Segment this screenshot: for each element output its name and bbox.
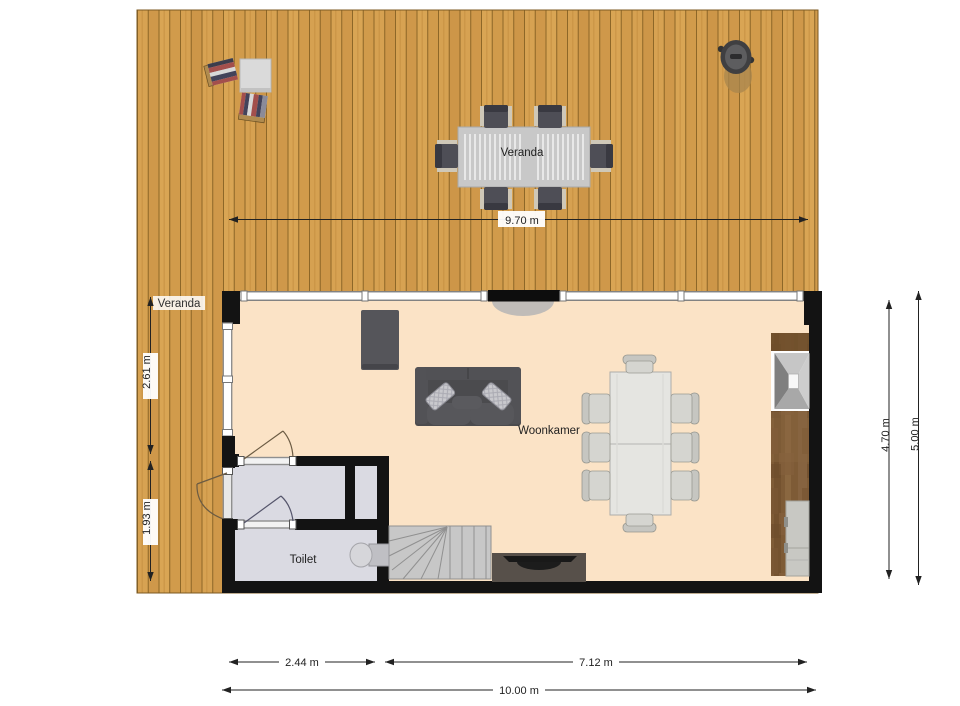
svg-text:4.70 m: 4.70 m (880, 418, 892, 452)
svg-text:1.93 m: 1.93 m (141, 501, 153, 535)
svg-text:9.70 m: 9.70 m (505, 215, 539, 227)
svg-text:Woonkamer: Woonkamer (518, 425, 580, 437)
svg-text:7.12 m: 7.12 m (579, 657, 613, 669)
svg-text:5.00 m: 5.00 m (910, 417, 922, 451)
svg-text:2.44 m: 2.44 m (285, 657, 319, 669)
svg-text:Veranda: Veranda (501, 147, 544, 159)
svg-text:Veranda: Veranda (158, 298, 201, 310)
svg-text:10.00 m: 10.00 m (499, 685, 539, 697)
svg-text:Toilet: Toilet (290, 554, 318, 566)
svg-text:2.61 m: 2.61 m (141, 355, 153, 389)
